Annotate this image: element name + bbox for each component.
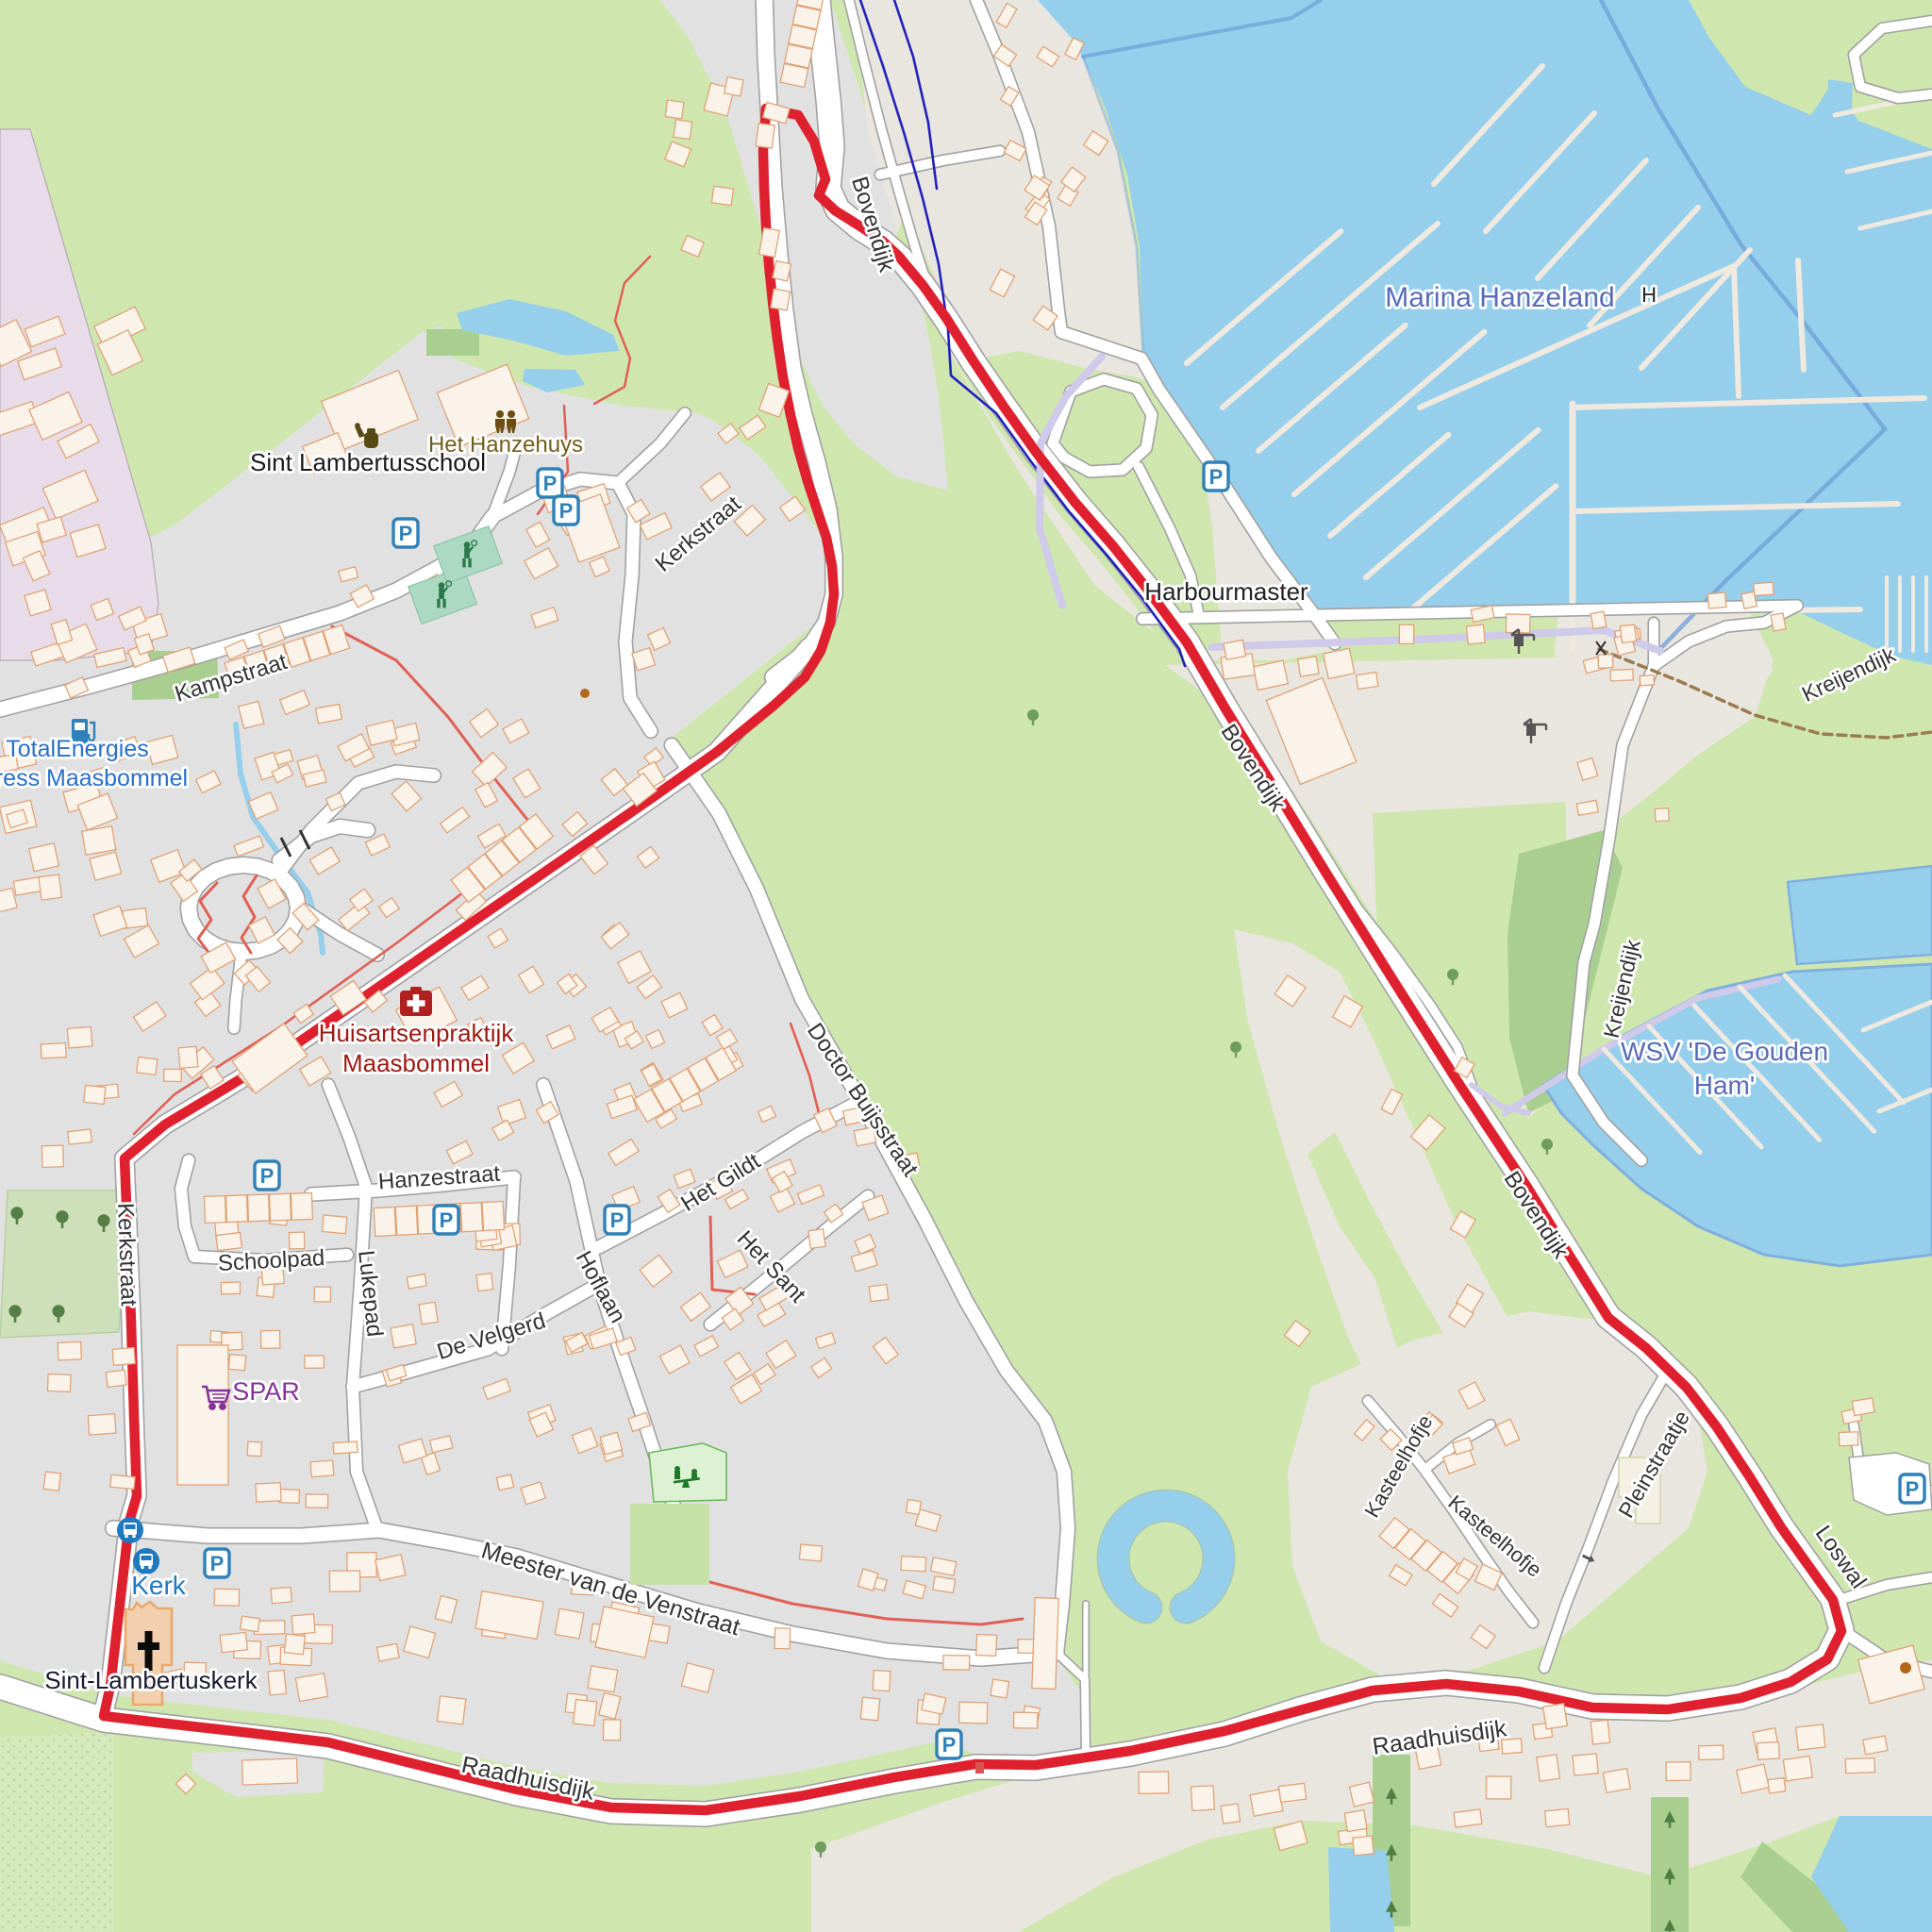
svg-text:P: P [1906,1477,1920,1501]
svg-text:P: P [610,1208,625,1232]
svg-text:H: H [1641,283,1657,307]
svg-text:Huisartsenpraktijk: Huisartsenpraktijk [319,1019,515,1047]
svg-text:Marina Hanzeland: Marina Hanzeland [1385,282,1614,313]
svg-text:P: P [399,522,413,545]
svg-text:P: P [260,1164,275,1188]
svg-text:SPAR: SPAR [232,1377,300,1406]
svg-text:Harbourmaster: Harbourmaster [1144,577,1308,606]
svg-text:P: P [1209,465,1224,489]
svg-text:P: P [559,499,574,523]
svg-text:P: P [942,1733,957,1757]
svg-text:P: P [543,472,558,495]
svg-text:Ham': Ham' [1694,1071,1755,1100]
svg-text:Kerkstraat: Kerkstraat [112,1203,142,1307]
svg-text:Kerk: Kerk [131,1571,187,1600]
svg-text:Sint-Lambertuskerk: Sint-Lambertuskerk [44,1666,258,1694]
svg-text:press Maasbommel: press Maasbommel [0,765,188,791]
svg-text:P: P [440,1208,454,1232]
svg-text:TotalEnergies: TotalEnergies [6,736,148,762]
svg-text:Maasbommel: Maasbommel [342,1049,490,1077]
svg-text:P: P [210,1552,225,1575]
svg-text:WSV 'De Gouden: WSV 'De Gouden [1621,1037,1828,1066]
svg-text:Sint Lambertusschool: Sint Lambertusschool [250,448,486,476]
